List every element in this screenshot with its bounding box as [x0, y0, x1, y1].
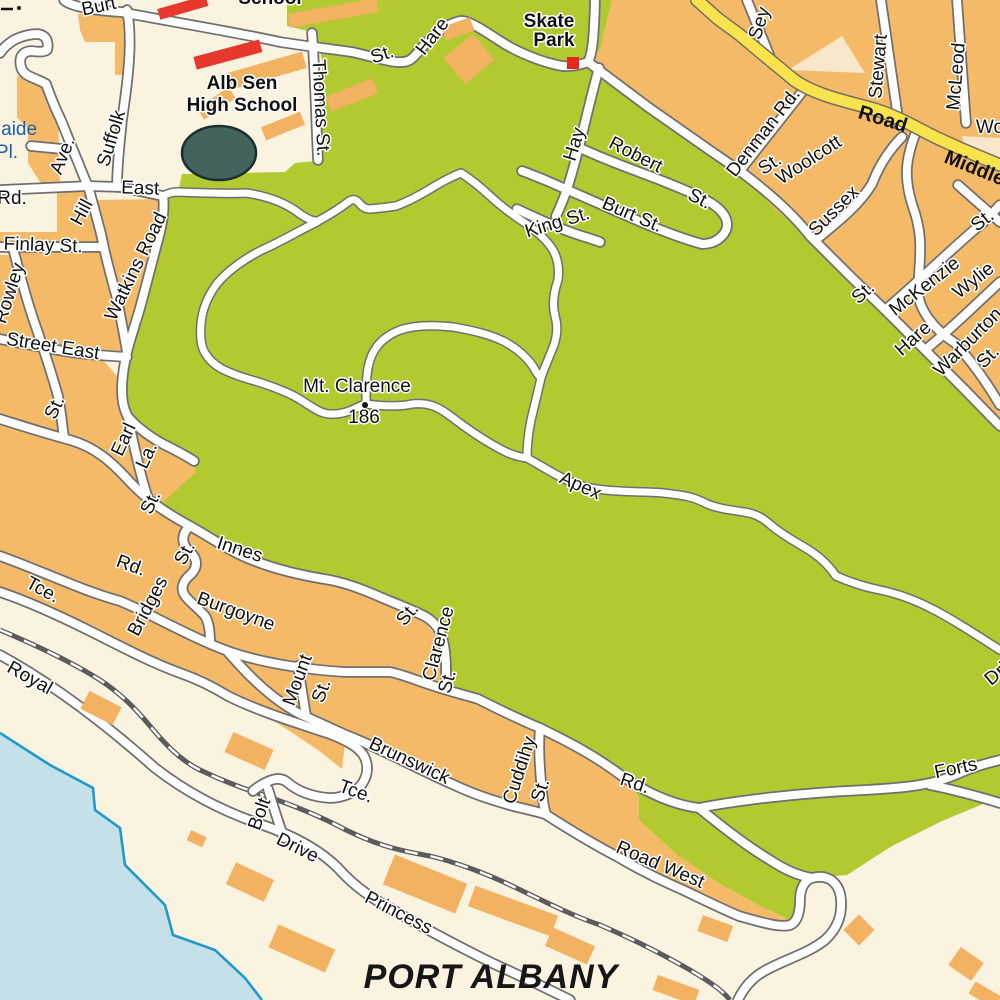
svg-text:Alb Sen: Alb Sen — [207, 73, 278, 94]
svg-text:High School: High School — [187, 95, 298, 116]
svg-text:Pl.: Pl. — [0, 142, 18, 163]
svg-text:PORT ALBANY: PORT ALBANY — [364, 958, 621, 996]
svg-text:School: School — [238, 0, 301, 9]
svg-text:Wo: Wo — [976, 117, 1000, 138]
svg-text:Park: Park — [533, 30, 575, 51]
svg-text:Mt. Clarence: Mt. Clarence — [303, 376, 411, 397]
svg-text:186: 186 — [348, 407, 380, 428]
svg-text:Rd.: Rd. — [0, 188, 27, 209]
svg-text:Finlay St.: Finlay St. — [3, 234, 83, 258]
svg-text:laide: laide — [0, 119, 37, 140]
svg-text:Skate: Skate — [524, 11, 575, 32]
svg-text:East: East — [121, 177, 160, 199]
